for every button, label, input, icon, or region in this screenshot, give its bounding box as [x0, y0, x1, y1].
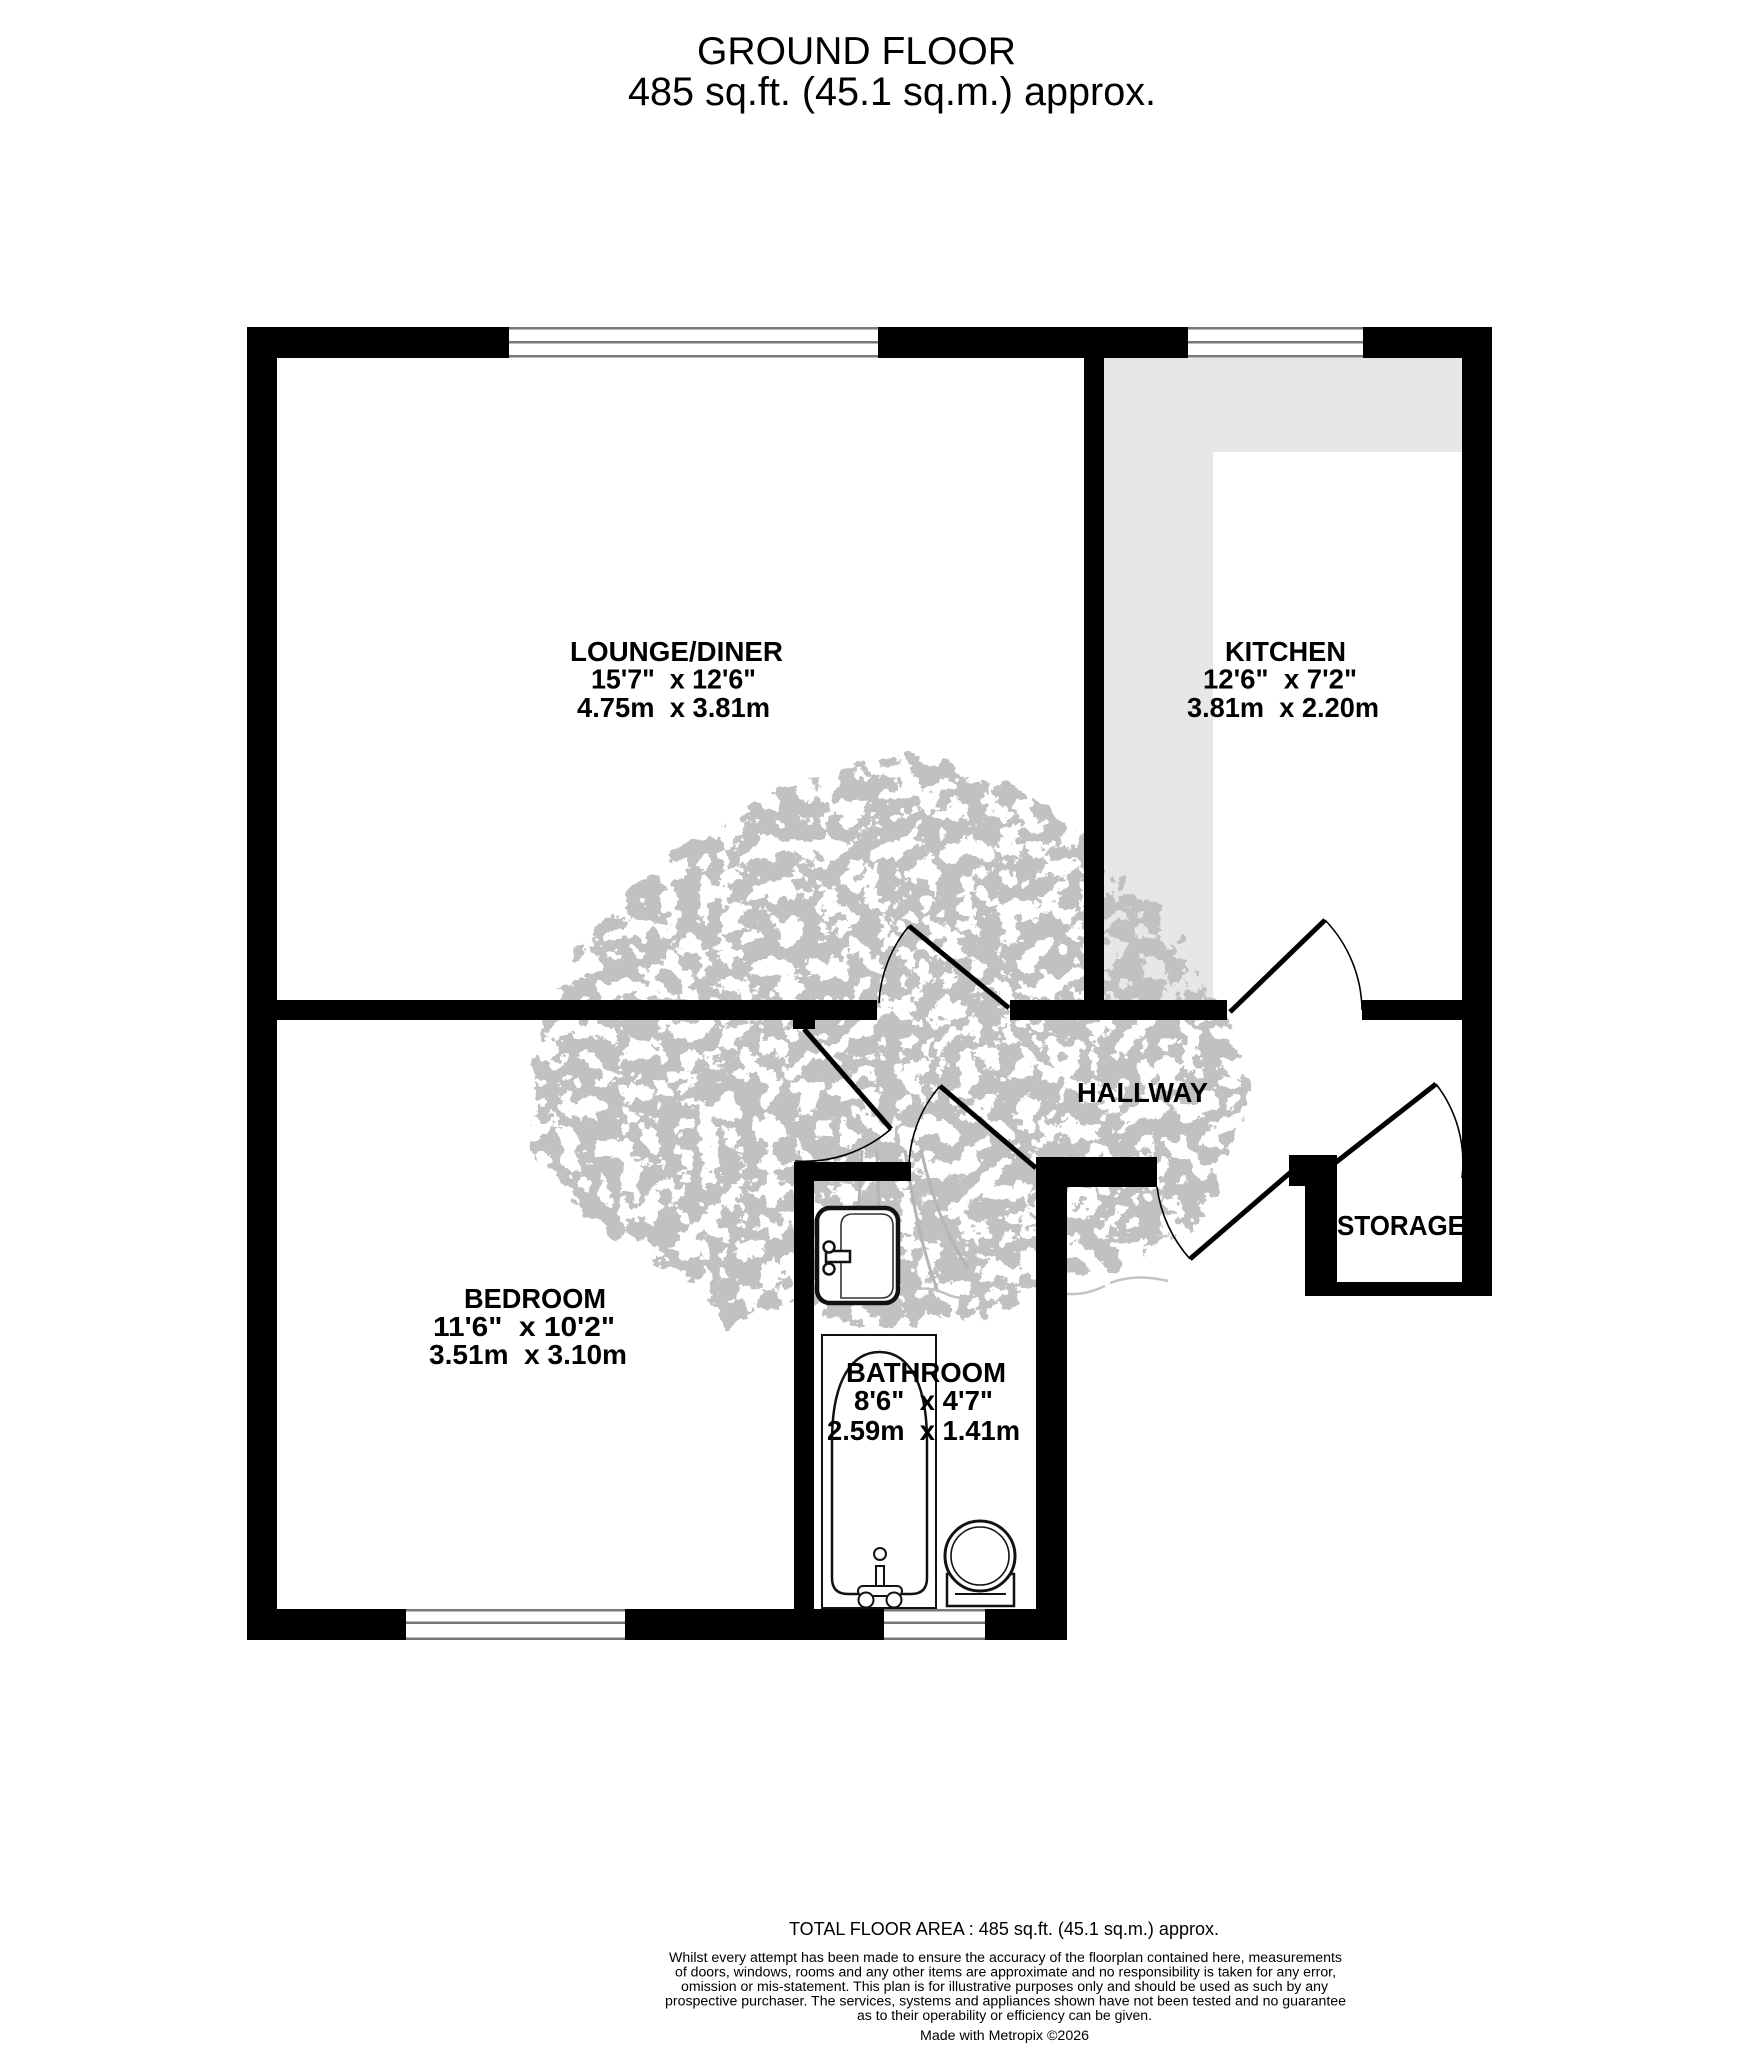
svg-text:8'6" x 4'7": 8'6" x 4'7" [854, 1385, 993, 1416]
svg-text:STORAGE: STORAGE [1337, 1210, 1465, 1241]
svg-text:3.51m x 3.10m: 3.51m x 3.10m [429, 1339, 627, 1370]
svg-text:11'6" x 10'2": 11'6" x 10'2" [433, 1311, 615, 1342]
svg-text:2.59m x 1.41m: 2.59m x 1.41m [827, 1415, 1020, 1446]
svg-text:485 sq.ft. (45.1 sq.m.) approx: 485 sq.ft. (45.1 sq.m.) approx. [628, 70, 1156, 114]
svg-text:BATHROOM: BATHROOM [846, 1357, 1006, 1388]
svg-text:15'7" x 12'6": 15'7" x 12'6" [591, 664, 756, 695]
svg-text:GROUND FLOOR: GROUND FLOOR [697, 30, 1016, 73]
svg-text:as to their operability or eff: as to their operability or efficiency ca… [857, 2008, 1152, 2024]
svg-text:12'6" x 7'2": 12'6" x 7'2" [1203, 664, 1357, 695]
svg-text:LOUNGE/DINER: LOUNGE/DINER [570, 636, 783, 667]
svg-text:KITCHEN: KITCHEN [1225, 636, 1346, 667]
svg-text:Made with Metropix ©2026: Made with Metropix ©2026 [920, 2028, 1089, 2044]
svg-text:4.75m x 3.81m: 4.75m x 3.81m [577, 692, 770, 723]
svg-text:BEDROOM: BEDROOM [464, 1283, 606, 1314]
svg-text:HALLWAY: HALLWAY [1077, 1077, 1208, 1108]
svg-text:TOTAL FLOOR AREA : 485 sq.ft.: TOTAL FLOOR AREA : 485 sq.ft. (45.1 sq.m… [789, 1919, 1219, 1939]
svg-text:3.81m x 2.20m: 3.81m x 2.20m [1187, 692, 1379, 723]
